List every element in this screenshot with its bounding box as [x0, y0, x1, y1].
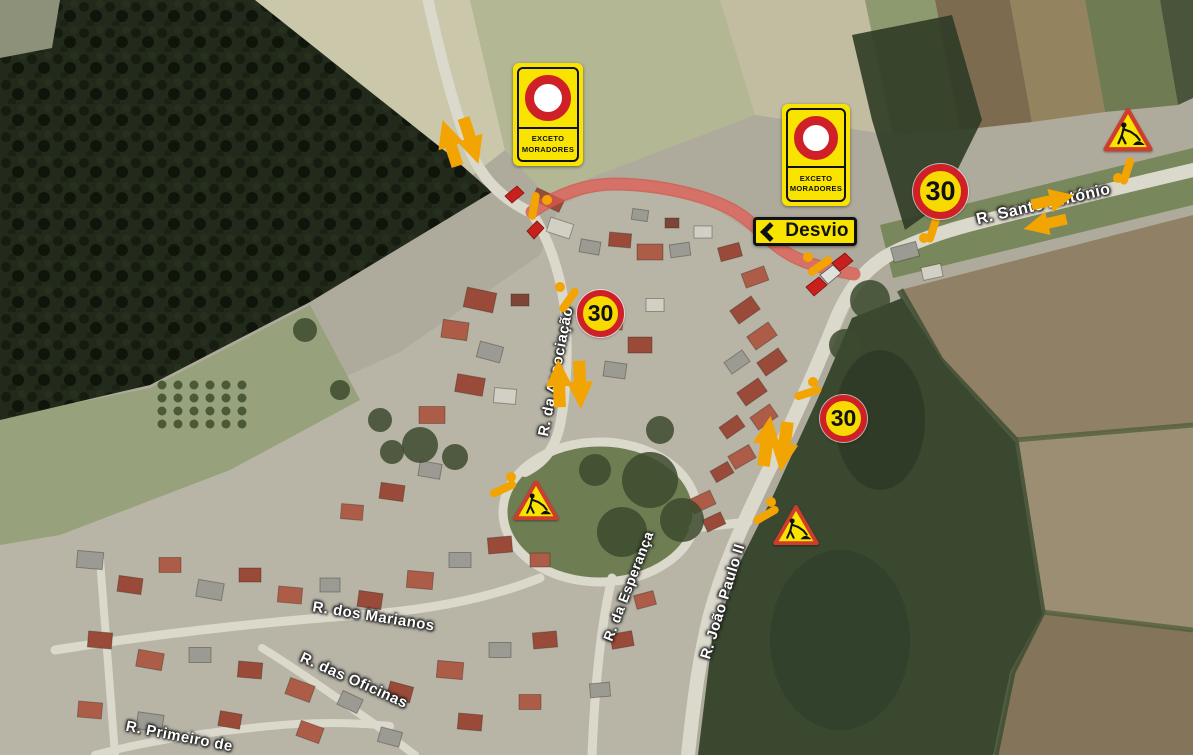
roadworks-sign: [1103, 106, 1153, 154]
speed-value: 30: [925, 176, 955, 207]
no-entry-except-residents-sign: EXCETO MORADORES: [782, 104, 850, 206]
exception-text-line1: EXCETO: [800, 174, 833, 184]
exception-text-line2: MORADORES: [790, 184, 842, 194]
post-marker: [528, 192, 552, 221]
no-entry-except-residents-sign: EXCETO MORADORES: [513, 63, 583, 166]
speed-limit-30-sign: 30: [913, 164, 968, 219]
roadworks-sign: [513, 477, 559, 524]
arrow-northeast-icon: [1029, 183, 1077, 216]
chevron-left-icon: [760, 222, 780, 242]
post-marker: [1113, 156, 1135, 185]
exception-text-line1: EXCETO: [532, 134, 565, 144]
detour-label: Desvio: [785, 220, 849, 244]
barrier-icon: [527, 221, 544, 239]
speed-limit-30-sign: 30: [577, 290, 624, 337]
speed-value: 30: [588, 300, 614, 327]
post-marker: [793, 377, 822, 401]
no-entry-circle-icon: [794, 116, 838, 160]
detour-direction-sign: Desvio: [753, 217, 857, 246]
map-canvas[interactable]: R. Santo António R. da Associação R. da …: [0, 0, 1193, 755]
sign-location-markers: [489, 156, 1136, 525]
annotation-overlay: [0, 0, 1193, 755]
arrow-southwest-icon: [1021, 207, 1069, 240]
barrier-icon: [505, 186, 524, 203]
roadworks-sign: [773, 502, 819, 549]
no-entry-circle-icon: [525, 75, 571, 121]
speed-limit-30-sign: 30: [820, 395, 867, 442]
traffic-arrows: [430, 114, 1077, 474]
exception-text-line2: MORADORES: [522, 145, 574, 155]
speed-value: 30: [831, 405, 857, 432]
arrow-down-icon: [566, 360, 594, 409]
